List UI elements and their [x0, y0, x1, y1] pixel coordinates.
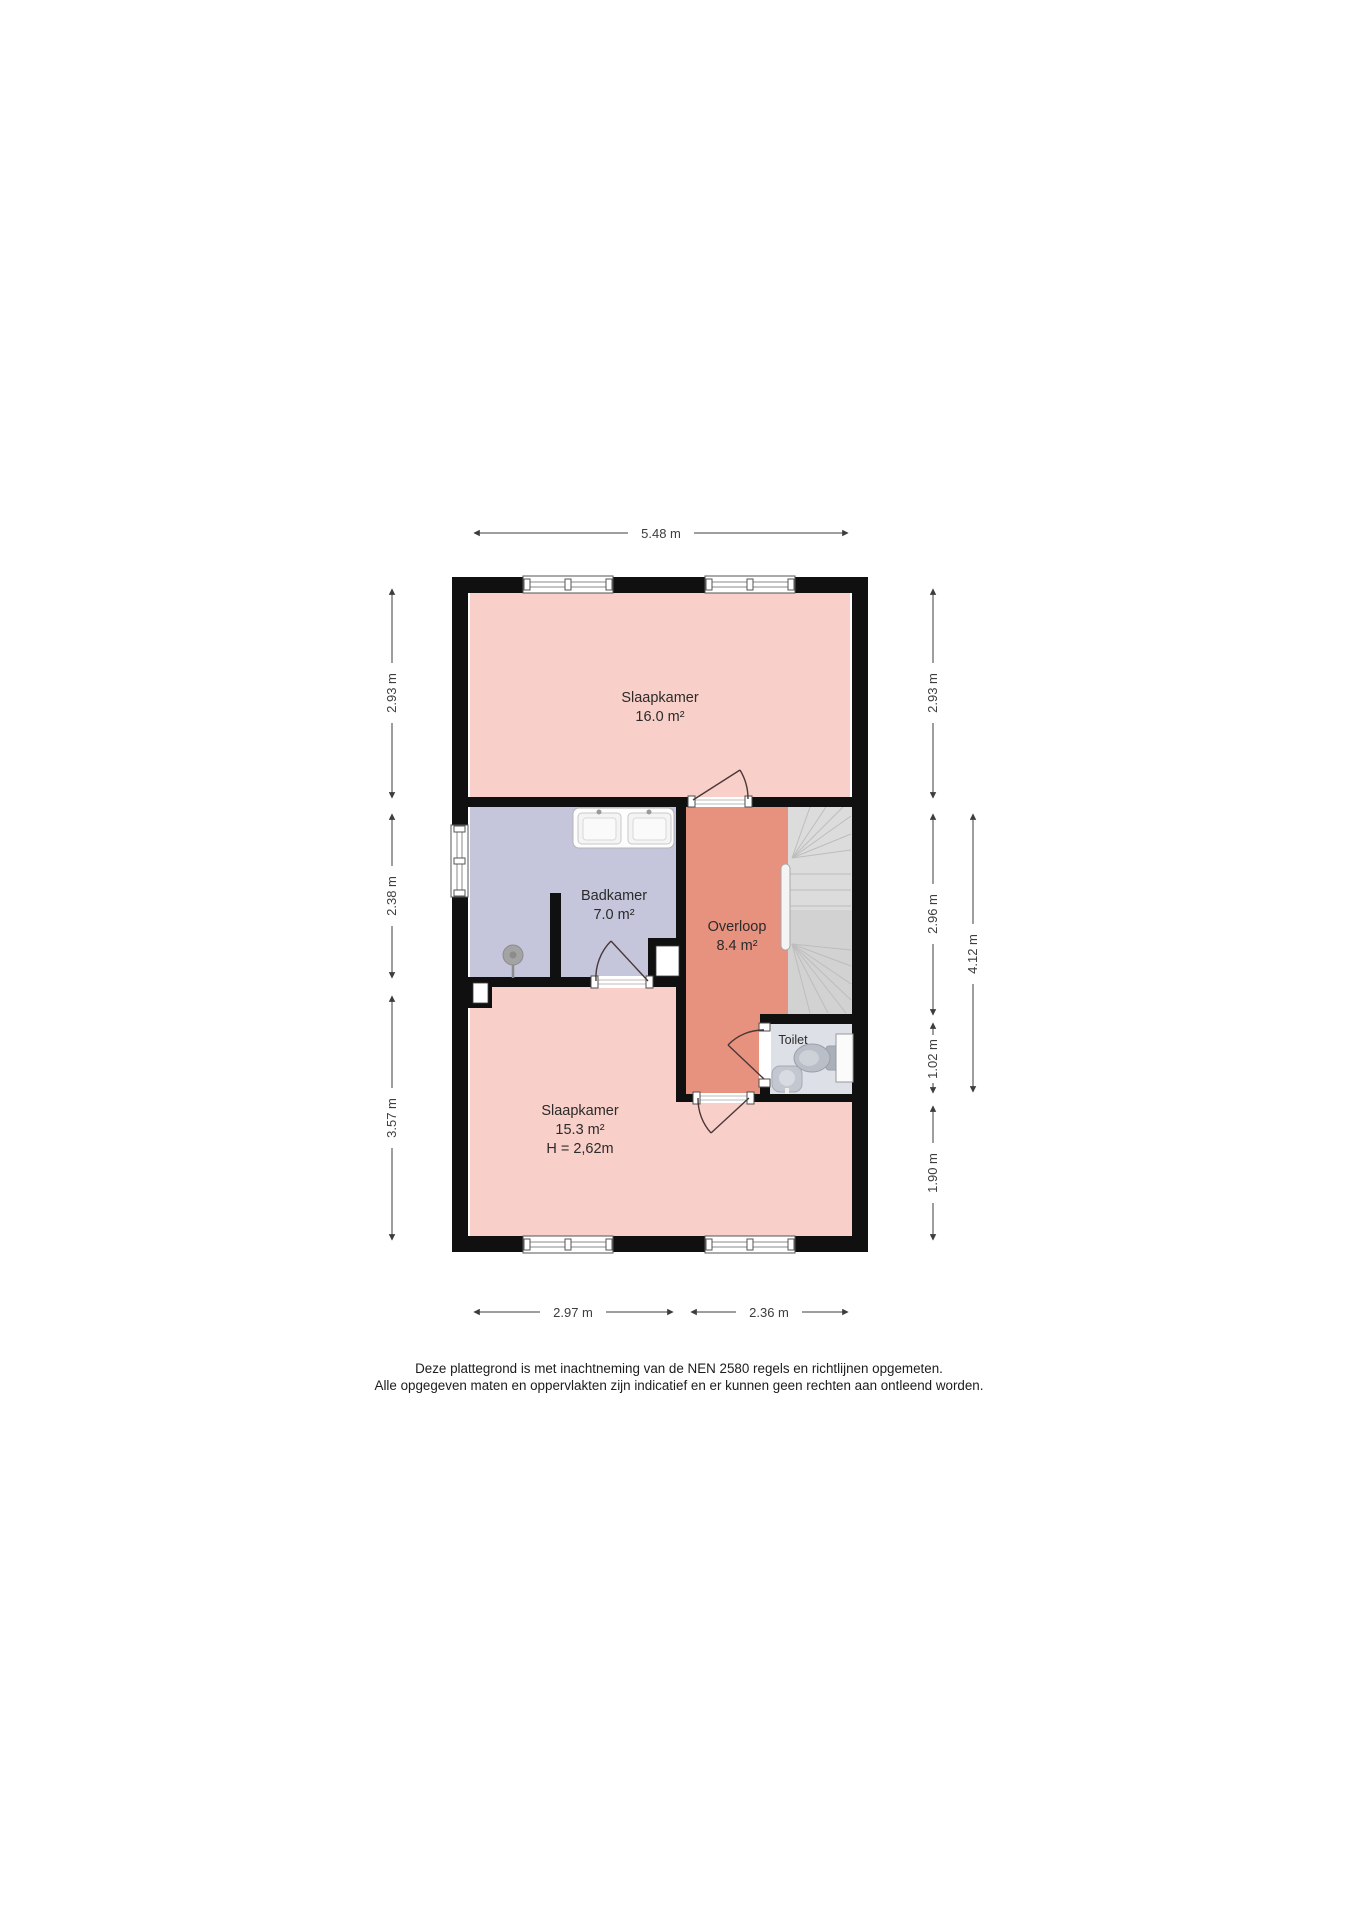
window-top-2	[705, 576, 795, 593]
dim-left-top: 2.93 m	[384, 673, 399, 713]
dim-left-middle: 2.38 m	[384, 876, 399, 916]
slaapkamer2-label: Slaapkamer	[541, 1103, 619, 1119]
dim-bottom-right: 2.36 m	[749, 1305, 789, 1320]
overloop-label: Overloop	[708, 919, 767, 935]
staircase	[781, 806, 852, 1014]
window-bottom-1	[523, 1236, 613, 1253]
footer-line-1: Deze plattegrond is met inachtneming van…	[415, 1361, 943, 1376]
dim-bottom-left: 2.97 m	[553, 1305, 593, 1320]
toilet-bowl-inner	[799, 1050, 819, 1066]
stair-handrail	[781, 864, 790, 950]
wall-top-middle	[613, 577, 705, 593]
wall-overloop-bottom-right	[749, 1094, 852, 1102]
toilet-label: Toilet	[778, 1033, 808, 1047]
window-left	[451, 825, 468, 897]
wall-divider-upper-left	[468, 797, 693, 807]
footer-line-2: Alle opgegeven maten en oppervlakten zij…	[375, 1378, 984, 1393]
dim-right-outer: 4.12 m	[965, 934, 980, 974]
sink-basin-left-inner	[583, 818, 616, 840]
badkamer-label: Badkamer	[581, 888, 647, 904]
dim-top-width: 5.48 m	[641, 526, 681, 541]
slaapkamer1-area: 16.0 m²	[635, 709, 684, 725]
toilet-sink-basin	[779, 1070, 795, 1086]
slaapkamer2-height-note: H = 2,62m	[546, 1141, 613, 1157]
wall-left-upper	[452, 577, 468, 825]
sink-tap-left	[597, 810, 602, 815]
dim-left-bottom: 3.57 m	[384, 1098, 399, 1138]
room-slaapkamer-2-floor-right	[676, 1102, 852, 1236]
window-bottom-2	[705, 1236, 795, 1253]
dim-right-upper-middle: 2.96 m	[925, 894, 940, 934]
wall-bottom-left	[452, 1236, 523, 1252]
shower-head-center	[510, 952, 517, 959]
wall-bottom-middle	[613, 1236, 705, 1252]
wall-niche-left	[473, 983, 488, 1003]
overloop-area: 8.4 m²	[716, 938, 757, 954]
footer: Deze plattegrond is met inachtneming van…	[375, 1361, 984, 1393]
wall-bottom-right	[795, 1236, 868, 1252]
wall-divider-upper-right	[747, 797, 852, 807]
dim-right-lower-middle: 1.02 m	[925, 1039, 940, 1079]
dim-right-bottom: 1.90 m	[925, 1153, 940, 1193]
wall-left-lower	[452, 897, 468, 1252]
slaapkamer1-label: Slaapkamer	[621, 690, 699, 706]
toilet-top-wall	[760, 1014, 852, 1024]
wall-niche-right	[656, 946, 679, 976]
badkamer-area: 7.0 m²	[593, 907, 634, 923]
floorplan-page: Slaapkamer 16.0 m² Badkamer 7.0 m² Overl…	[0, 0, 1358, 1920]
toilet-radiator	[836, 1034, 853, 1082]
dim-right-top: 2.93 m	[925, 673, 940, 713]
slaapkamer2-area: 15.3 m²	[555, 1122, 604, 1138]
sink-basin-right-inner	[633, 818, 666, 840]
sink-tap-right	[647, 810, 652, 815]
wall-shower-stub	[550, 893, 561, 977]
window-top-1	[523, 576, 613, 593]
floorplan-drawing: Slaapkamer 16.0 m² Badkamer 7.0 m² Overl…	[0, 0, 1358, 1920]
wall-right	[852, 577, 868, 1252]
